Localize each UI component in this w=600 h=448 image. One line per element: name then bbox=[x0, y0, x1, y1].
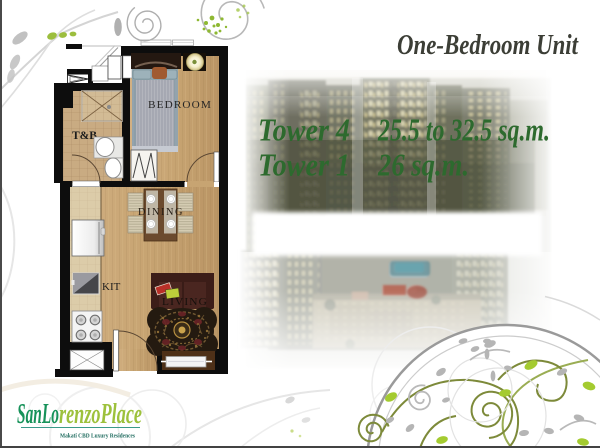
svg-text:One-Bedroom Unit: One-Bedroom Unit bbox=[397, 30, 579, 61]
svg-text:T&B: T&B bbox=[72, 130, 97, 142]
svg-text:KIT: KIT bbox=[102, 281, 121, 293]
svg-text:Tower 4: Tower 4 bbox=[258, 112, 350, 148]
svg-text:Tower 1: Tower 1 bbox=[258, 147, 350, 183]
svg-text:25.5 to 32.5 sq.m.: 25.5 to 32.5 sq.m. bbox=[377, 112, 550, 148]
svg-text:DINING: DINING bbox=[138, 207, 184, 218]
svg-text:BEDROOM: BEDROOM bbox=[148, 100, 212, 111]
svg-text:renzoPlace: renzoPlace bbox=[59, 399, 142, 430]
svg-text:LIVING: LIVING bbox=[162, 297, 208, 308]
svg-text:SanLo: SanLo bbox=[17, 399, 59, 430]
svg-text:26 sq.m.: 26 sq.m. bbox=[377, 147, 469, 183]
svg-text:Makati CBD Luxury Residences: Makati CBD Luxury Residences bbox=[60, 434, 136, 440]
